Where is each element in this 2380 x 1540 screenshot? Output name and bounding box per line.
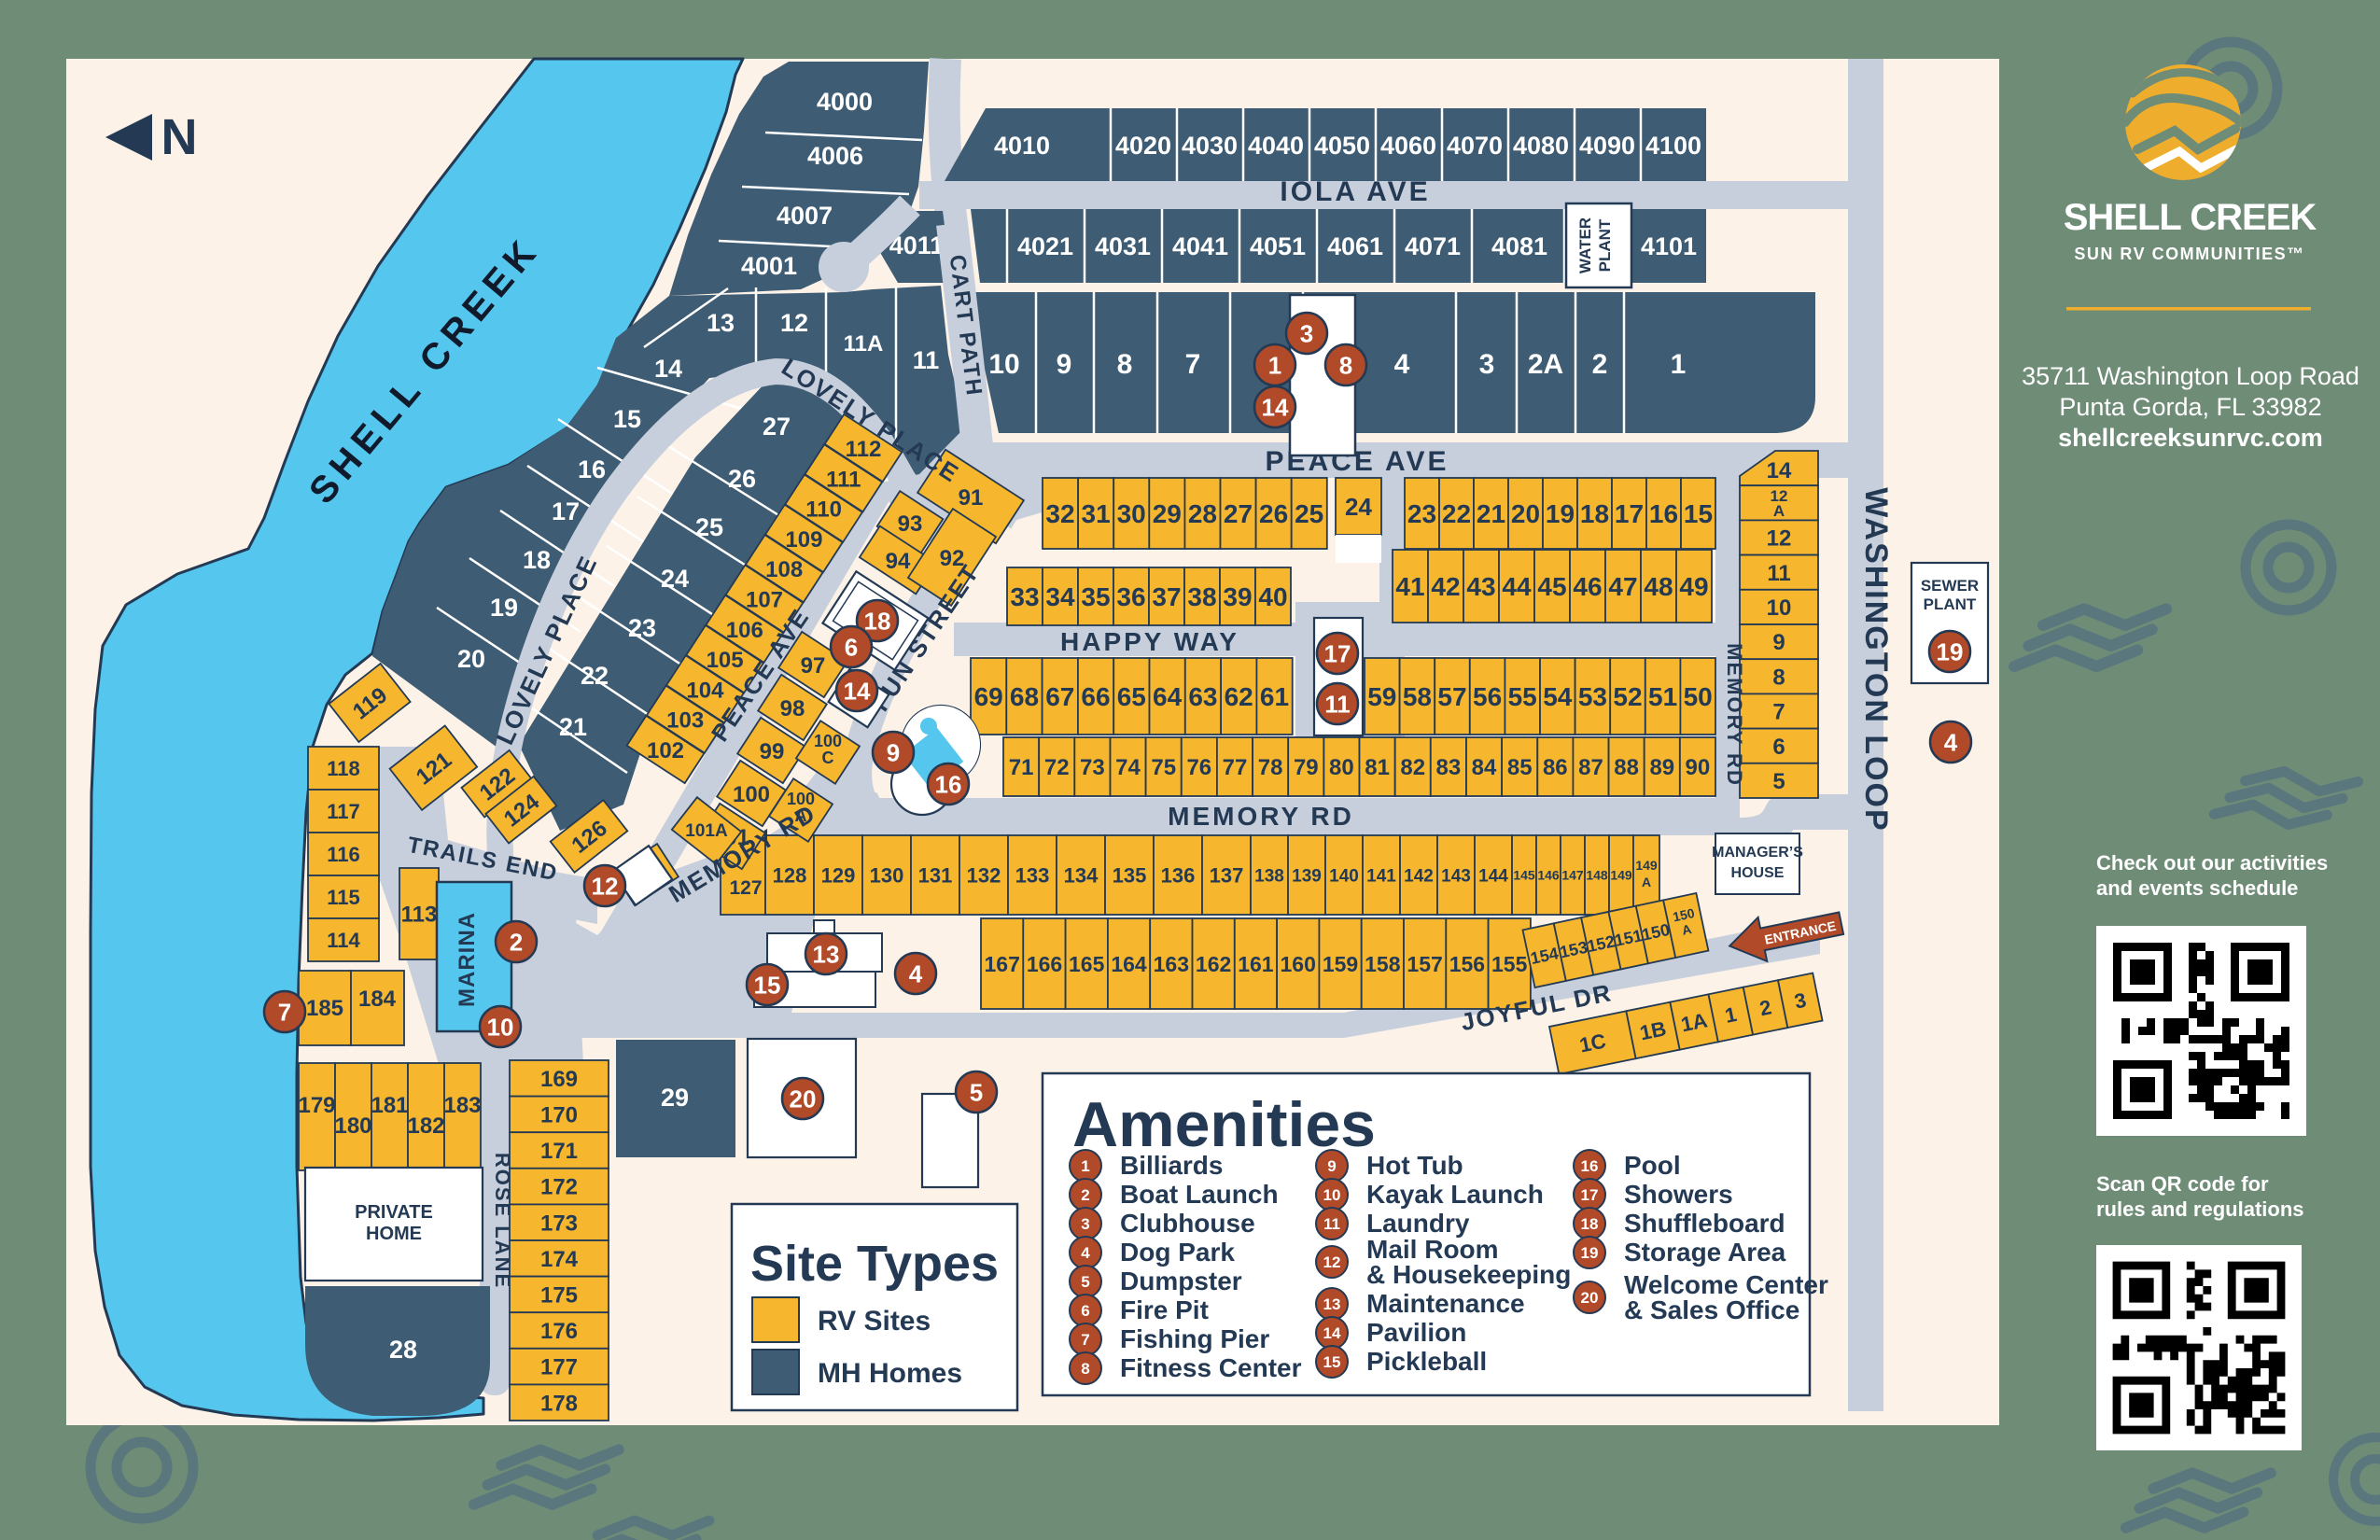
svg-text:116: 116 xyxy=(327,843,360,866)
svg-text:8: 8 xyxy=(1117,349,1133,380)
svg-text:46: 46 xyxy=(1573,572,1602,601)
svg-text:35711 Washington Loop Road: 35711 Washington Loop Road xyxy=(2022,362,2359,390)
svg-text:13: 13 xyxy=(1323,1295,1341,1313)
svg-text:RV Sites: RV Sites xyxy=(818,1306,931,1337)
svg-text:rules and regulations: rules and regulations xyxy=(2096,1197,2304,1221)
svg-text:Clubhouse: Clubhouse xyxy=(1120,1209,1255,1238)
svg-text:2: 2 xyxy=(510,928,523,956)
svg-text:61: 61 xyxy=(1260,682,1289,711)
svg-text:28: 28 xyxy=(389,1336,417,1364)
svg-text:9: 9 xyxy=(1057,349,1072,380)
svg-text:4007: 4007 xyxy=(777,202,833,230)
svg-text:143: 143 xyxy=(1441,866,1471,886)
svg-text:138: 138 xyxy=(1254,866,1284,886)
svg-text:4071: 4071 xyxy=(1405,232,1461,260)
svg-text:139: 139 xyxy=(1292,866,1322,886)
svg-text:79: 79 xyxy=(1294,755,1319,780)
svg-text:100: 100 xyxy=(814,732,842,750)
svg-text:99: 99 xyxy=(760,739,785,764)
svg-text:98: 98 xyxy=(780,696,805,721)
svg-text:12: 12 xyxy=(780,309,808,337)
svg-text:Site Types: Site Types xyxy=(750,1236,999,1292)
svg-text:110: 110 xyxy=(805,497,842,523)
svg-text:29: 29 xyxy=(1153,499,1182,528)
svg-text:165: 165 xyxy=(1069,952,1105,976)
svg-text:6: 6 xyxy=(1081,1302,1089,1320)
svg-text:100: 100 xyxy=(733,782,770,807)
svg-text:Check out our activities: Check out our activities xyxy=(2096,851,2328,875)
svg-text:17: 17 xyxy=(1324,639,1351,667)
svg-text:3: 3 xyxy=(1479,349,1495,380)
svg-text:65: 65 xyxy=(1117,682,1146,711)
svg-text:17: 17 xyxy=(552,497,580,525)
svg-text:49: 49 xyxy=(1679,572,1708,601)
svg-text:25: 25 xyxy=(1295,499,1323,528)
svg-text:13: 13 xyxy=(707,309,735,337)
svg-text:133: 133 xyxy=(1015,863,1050,887)
svg-text:81: 81 xyxy=(1365,755,1390,780)
svg-text:55: 55 xyxy=(1508,682,1537,711)
svg-text:181: 181 xyxy=(371,1093,408,1118)
svg-text:42: 42 xyxy=(1431,572,1460,601)
svg-text:C: C xyxy=(822,749,834,767)
svg-text:4081: 4081 xyxy=(1491,232,1547,260)
svg-text:93: 93 xyxy=(898,511,923,537)
svg-text:Punta Gorda, FL 33982: Punta Gorda, FL 33982 xyxy=(2059,393,2321,421)
svg-text:11: 11 xyxy=(913,346,940,374)
svg-text:15: 15 xyxy=(754,971,781,999)
svg-text:1: 1 xyxy=(1081,1157,1089,1175)
svg-text:180: 180 xyxy=(334,1113,371,1139)
svg-text:142: 142 xyxy=(1404,866,1434,886)
svg-text:WATER: WATER xyxy=(1576,217,1594,273)
svg-text:Hot Tub: Hot Tub xyxy=(1366,1151,1463,1180)
svg-text:157: 157 xyxy=(1407,952,1442,976)
svg-text:27: 27 xyxy=(1224,499,1253,528)
svg-text:141: 141 xyxy=(1366,866,1396,886)
svg-text:158: 158 xyxy=(1365,952,1401,976)
svg-text:12: 12 xyxy=(592,872,619,900)
svg-text:11: 11 xyxy=(1323,1215,1340,1233)
svg-text:20: 20 xyxy=(790,1085,817,1113)
svg-text:145: 145 xyxy=(1513,868,1535,883)
svg-text:19: 19 xyxy=(1581,1244,1599,1262)
svg-text:90: 90 xyxy=(1686,755,1711,780)
svg-text:23: 23 xyxy=(628,614,656,642)
svg-text:97: 97 xyxy=(801,653,826,679)
svg-text:4: 4 xyxy=(1394,349,1410,380)
svg-text:14: 14 xyxy=(1323,1324,1341,1342)
svg-text:1: 1 xyxy=(1268,351,1281,379)
svg-text:107: 107 xyxy=(746,588,783,613)
svg-text:19: 19 xyxy=(1937,637,1964,665)
svg-text:149: 149 xyxy=(1610,868,1632,883)
svg-text:38: 38 xyxy=(1187,582,1216,611)
svg-text:36: 36 xyxy=(1116,582,1145,611)
svg-text:7: 7 xyxy=(1081,1331,1089,1349)
svg-text:28: 28 xyxy=(1188,499,1217,528)
svg-text:52: 52 xyxy=(1613,682,1642,711)
svg-text:135: 135 xyxy=(1113,863,1147,887)
svg-text:41: 41 xyxy=(1395,572,1424,601)
svg-text:159: 159 xyxy=(1323,952,1358,976)
svg-text:147: 147 xyxy=(1561,868,1584,883)
svg-text:4101: 4101 xyxy=(1641,232,1697,260)
svg-text:86: 86 xyxy=(1543,755,1568,780)
svg-text:HAPPY WAY: HAPPY WAY xyxy=(1060,627,1239,656)
svg-text:109: 109 xyxy=(785,527,822,553)
svg-text:Pool: Pool xyxy=(1624,1151,1681,1180)
svg-text:163: 163 xyxy=(1154,952,1189,976)
svg-text:32: 32 xyxy=(1045,499,1074,528)
svg-text:35: 35 xyxy=(1081,582,1110,611)
svg-text:77: 77 xyxy=(1223,755,1248,780)
svg-text:75: 75 xyxy=(1151,755,1176,780)
svg-text:82: 82 xyxy=(1400,755,1425,780)
svg-text:4010: 4010 xyxy=(994,132,1050,160)
svg-text:108: 108 xyxy=(765,557,803,582)
svg-text:173: 173 xyxy=(540,1211,578,1236)
svg-text:Showers: Showers xyxy=(1624,1180,1733,1209)
svg-text:148: 148 xyxy=(1586,868,1608,883)
svg-text:130: 130 xyxy=(870,863,904,887)
svg-text:4001: 4001 xyxy=(741,252,797,280)
svg-text:73: 73 xyxy=(1080,755,1105,780)
svg-text:102: 102 xyxy=(647,738,684,763)
svg-text:69: 69 xyxy=(974,682,1003,711)
svg-text:20: 20 xyxy=(1511,499,1540,528)
svg-text:7: 7 xyxy=(1772,700,1785,725)
svg-text:A: A xyxy=(1642,875,1651,889)
svg-text:9: 9 xyxy=(1327,1157,1336,1175)
svg-text:161: 161 xyxy=(1238,952,1274,976)
svg-text:34: 34 xyxy=(1045,582,1075,611)
svg-text:72: 72 xyxy=(1044,755,1070,780)
svg-text:54: 54 xyxy=(1543,682,1573,711)
svg-text:29: 29 xyxy=(661,1084,689,1112)
svg-text:58: 58 xyxy=(1403,682,1432,711)
svg-text:25: 25 xyxy=(695,513,723,541)
svg-text:53: 53 xyxy=(1578,682,1607,711)
svg-text:& Housekeeping: & Housekeeping xyxy=(1366,1260,1571,1289)
svg-text:127: 127 xyxy=(729,877,762,899)
svg-text:167: 167 xyxy=(985,952,1020,976)
svg-text:6: 6 xyxy=(1772,735,1785,760)
svg-text:111: 111 xyxy=(826,467,861,492)
svg-text:Dog Park: Dog Park xyxy=(1120,1238,1235,1267)
svg-text:40: 40 xyxy=(1258,582,1287,611)
svg-text:4031: 4031 xyxy=(1095,232,1151,260)
svg-text:179: 179 xyxy=(298,1093,335,1118)
svg-text:14: 14 xyxy=(1767,458,1792,483)
svg-text:89: 89 xyxy=(1649,755,1674,780)
svg-text:14: 14 xyxy=(1262,393,1289,421)
svg-text:MEMORY RD: MEMORY RD xyxy=(1723,643,1746,787)
svg-text:88: 88 xyxy=(1614,755,1639,780)
svg-text:5: 5 xyxy=(1081,1273,1089,1291)
svg-text:185: 185 xyxy=(306,996,343,1021)
svg-text:4041: 4041 xyxy=(1172,232,1228,260)
svg-text:74: 74 xyxy=(1115,755,1141,780)
svg-text:114: 114 xyxy=(327,929,360,952)
svg-text:170: 170 xyxy=(540,1103,578,1128)
svg-text:18: 18 xyxy=(1581,1215,1599,1233)
svg-text:37: 37 xyxy=(1152,582,1181,611)
svg-text:Boat Launch: Boat Launch xyxy=(1120,1180,1279,1209)
svg-text:84: 84 xyxy=(1472,755,1497,780)
svg-text:8: 8 xyxy=(1081,1360,1089,1378)
svg-text:156: 156 xyxy=(1449,952,1485,976)
svg-text:4070: 4070 xyxy=(1447,132,1503,160)
svg-text:57: 57 xyxy=(1437,682,1466,711)
svg-text:33: 33 xyxy=(1010,582,1039,611)
svg-text:12: 12 xyxy=(1323,1253,1341,1271)
svg-text:15: 15 xyxy=(1323,1353,1341,1371)
svg-text:24: 24 xyxy=(1345,493,1372,521)
svg-text:4080: 4080 xyxy=(1513,132,1569,160)
svg-text:183: 183 xyxy=(443,1093,481,1118)
svg-text:149: 149 xyxy=(1635,858,1658,873)
svg-text:9: 9 xyxy=(887,738,900,766)
svg-text:4061: 4061 xyxy=(1327,232,1383,260)
svg-text:N: N xyxy=(161,109,198,165)
svg-text:Fitness Center: Fitness Center xyxy=(1120,1353,1302,1382)
svg-text:128: 128 xyxy=(773,863,807,887)
svg-text:16: 16 xyxy=(578,455,606,483)
svg-text:177: 177 xyxy=(540,1355,578,1380)
svg-text:SUN RV COMMUNITIES™: SUN RV COMMUNITIES™ xyxy=(2074,245,2304,263)
svg-text:4100: 4100 xyxy=(1645,132,1701,160)
svg-text:71: 71 xyxy=(1009,755,1034,780)
svg-text:18: 18 xyxy=(1580,499,1609,528)
svg-text:140: 140 xyxy=(1329,866,1359,886)
svg-text:2A: 2A xyxy=(1528,349,1563,380)
svg-text:4030: 4030 xyxy=(1182,132,1238,160)
svg-text:22: 22 xyxy=(1442,499,1471,528)
svg-text:18: 18 xyxy=(864,607,891,635)
svg-text:PLANT: PLANT xyxy=(1596,218,1614,272)
svg-text:104: 104 xyxy=(686,678,724,703)
svg-text:9: 9 xyxy=(1772,630,1785,655)
svg-text:21: 21 xyxy=(559,713,587,741)
svg-text:105: 105 xyxy=(707,648,744,673)
svg-text:HOME: HOME xyxy=(366,1224,422,1244)
svg-text:59: 59 xyxy=(1367,682,1396,711)
svg-text:117: 117 xyxy=(327,800,360,823)
svg-text:67: 67 xyxy=(1045,682,1074,711)
svg-text:62: 62 xyxy=(1225,682,1253,711)
svg-text:101A: 101A xyxy=(685,821,728,841)
svg-text:56: 56 xyxy=(1473,682,1502,711)
svg-text:66: 66 xyxy=(1081,682,1110,711)
svg-text:178: 178 xyxy=(540,1391,578,1416)
svg-text:4021: 4021 xyxy=(1017,232,1073,260)
svg-text:16: 16 xyxy=(1581,1157,1599,1175)
svg-text:Shuffleboard: Shuffleboard xyxy=(1624,1209,1785,1238)
svg-text:16: 16 xyxy=(1649,499,1678,528)
svg-text:10: 10 xyxy=(988,349,1019,380)
svg-text:11: 11 xyxy=(1767,561,1790,586)
svg-text:15: 15 xyxy=(613,405,641,433)
svg-text:10: 10 xyxy=(1323,1186,1341,1204)
svg-text:166: 166 xyxy=(1027,952,1062,976)
svg-text:80: 80 xyxy=(1329,755,1354,780)
svg-text:131: 131 xyxy=(918,863,953,887)
svg-text:48: 48 xyxy=(1644,572,1673,601)
svg-text:24: 24 xyxy=(661,565,689,593)
svg-text:23: 23 xyxy=(1407,499,1436,528)
svg-text:113: 113 xyxy=(401,903,438,928)
svg-text:44: 44 xyxy=(1502,572,1532,601)
svg-text:4020: 4020 xyxy=(1115,132,1171,160)
svg-text:26: 26 xyxy=(728,465,756,493)
svg-text:3: 3 xyxy=(1081,1215,1089,1233)
svg-text:& Sales Office: & Sales Office xyxy=(1624,1295,1799,1324)
svg-text:103: 103 xyxy=(666,708,704,734)
svg-text:ROSE LANE: ROSE LANE xyxy=(491,1153,514,1289)
svg-text:8: 8 xyxy=(1339,351,1352,379)
svg-text:5: 5 xyxy=(1772,769,1785,794)
svg-text:94: 94 xyxy=(886,549,911,574)
svg-text:20: 20 xyxy=(457,645,485,673)
svg-text:19: 19 xyxy=(490,594,518,622)
svg-text:171: 171 xyxy=(540,1139,578,1164)
svg-text:155: 155 xyxy=(1491,952,1528,976)
svg-text:13: 13 xyxy=(813,940,840,968)
svg-text:19: 19 xyxy=(1546,499,1575,528)
svg-text:WASHINGTON LOOP: WASHINGTON LOOP xyxy=(1858,487,1894,832)
svg-text:64: 64 xyxy=(1153,682,1183,711)
svg-text:3: 3 xyxy=(1300,319,1313,347)
svg-text:26: 26 xyxy=(1259,499,1288,528)
svg-text:PLANT: PLANT xyxy=(1924,595,1977,613)
svg-text:136: 136 xyxy=(1161,863,1196,887)
svg-text:43: 43 xyxy=(1466,572,1495,601)
svg-text:MEMORY RD: MEMORY RD xyxy=(1168,802,1354,831)
svg-text:1: 1 xyxy=(1671,349,1687,380)
svg-text:2: 2 xyxy=(1592,349,1608,380)
svg-text:16: 16 xyxy=(935,770,962,798)
svg-text:Fishing Pier: Fishing Pier xyxy=(1120,1324,1269,1353)
svg-text:shellcreeksunrvc.com: shellcreeksunrvc.com xyxy=(2058,424,2323,452)
svg-text:Billiards: Billiards xyxy=(1120,1151,1223,1180)
svg-text:76: 76 xyxy=(1186,755,1211,780)
svg-text:10: 10 xyxy=(1767,595,1792,621)
svg-text:63: 63 xyxy=(1188,682,1217,711)
svg-text:50: 50 xyxy=(1684,682,1713,711)
svg-text:176: 176 xyxy=(540,1319,578,1344)
svg-text:118: 118 xyxy=(327,757,360,780)
svg-text:SHELL CREEK: SHELL CREEK xyxy=(2064,197,2317,238)
svg-text:106: 106 xyxy=(726,618,763,643)
svg-text:144: 144 xyxy=(1478,866,1508,886)
svg-text:182: 182 xyxy=(407,1113,444,1139)
svg-text:7: 7 xyxy=(278,998,291,1026)
svg-text:27: 27 xyxy=(763,413,791,441)
svg-text:12: 12 xyxy=(1767,526,1792,552)
svg-text:Fire Pit: Fire Pit xyxy=(1120,1295,1209,1324)
svg-text:31: 31 xyxy=(1082,499,1111,528)
svg-text:45: 45 xyxy=(1537,572,1566,601)
svg-text:17: 17 xyxy=(1581,1186,1599,1204)
svg-text:Pavilion: Pavilion xyxy=(1366,1318,1466,1347)
svg-text:5: 5 xyxy=(970,1078,983,1106)
svg-text:11: 11 xyxy=(1324,690,1351,718)
svg-text:39: 39 xyxy=(1223,582,1252,611)
svg-text:85: 85 xyxy=(1507,755,1533,780)
svg-text:51: 51 xyxy=(1648,682,1677,711)
svg-text:14: 14 xyxy=(654,355,682,383)
svg-text:15: 15 xyxy=(1684,499,1713,528)
svg-text:91: 91 xyxy=(959,485,984,511)
svg-text:8: 8 xyxy=(1772,665,1785,690)
svg-text:SEWER: SEWER xyxy=(1921,577,1979,595)
svg-text:4090: 4090 xyxy=(1579,132,1635,160)
svg-text:and events schedule: and events schedule xyxy=(2096,876,2298,900)
svg-text:4: 4 xyxy=(1081,1244,1090,1262)
svg-text:PRIVATE: PRIVATE xyxy=(355,1202,433,1223)
svg-text:4040: 4040 xyxy=(1248,132,1304,160)
svg-text:4050: 4050 xyxy=(1314,132,1370,160)
svg-text:14: 14 xyxy=(844,677,871,705)
svg-text:2: 2 xyxy=(1081,1186,1089,1204)
svg-text:132: 132 xyxy=(967,863,1001,887)
svg-text:7: 7 xyxy=(1185,349,1201,380)
svg-text:4060: 4060 xyxy=(1380,132,1436,160)
svg-text:Laundry: Laundry xyxy=(1366,1209,1470,1238)
svg-text:30: 30 xyxy=(1117,499,1146,528)
svg-text:18: 18 xyxy=(523,546,551,574)
svg-text:129: 129 xyxy=(821,863,856,887)
svg-text:137: 137 xyxy=(1210,863,1244,887)
svg-text:Scan QR code for: Scan QR code for xyxy=(2096,1172,2269,1196)
svg-text:11A: 11A xyxy=(844,331,884,357)
svg-text:4: 4 xyxy=(909,959,923,987)
svg-text:MANAGER’S: MANAGER’S xyxy=(1712,845,1803,861)
svg-text:Dumpster: Dumpster xyxy=(1120,1267,1242,1295)
svg-text:6: 6 xyxy=(845,633,858,661)
svg-text:22: 22 xyxy=(581,662,609,690)
svg-text:Kayak Launch: Kayak Launch xyxy=(1366,1180,1544,1209)
svg-text:10: 10 xyxy=(487,1013,514,1041)
svg-text:83: 83 xyxy=(1436,755,1462,780)
svg-text:160: 160 xyxy=(1281,952,1316,976)
svg-text:162: 162 xyxy=(1196,952,1231,976)
svg-text:17: 17 xyxy=(1615,499,1644,528)
svg-text:MH Homes: MH Homes xyxy=(818,1358,962,1389)
svg-text:174: 174 xyxy=(540,1247,579,1272)
svg-text:78: 78 xyxy=(1258,755,1283,780)
svg-text:87: 87 xyxy=(1578,755,1603,780)
svg-text:4051: 4051 xyxy=(1250,232,1306,260)
svg-text:68: 68 xyxy=(1010,682,1039,711)
svg-text:169: 169 xyxy=(540,1067,578,1092)
svg-text:112: 112 xyxy=(846,437,882,462)
svg-text:47: 47 xyxy=(1608,572,1637,601)
svg-text:IOLA AVE: IOLA AVE xyxy=(1280,176,1430,207)
svg-text:4000: 4000 xyxy=(817,88,873,116)
svg-text:115: 115 xyxy=(327,886,360,909)
svg-text:A: A xyxy=(1773,502,1785,520)
svg-text:184: 184 xyxy=(358,987,397,1012)
svg-text:146: 146 xyxy=(1537,868,1560,883)
svg-text:MARINA: MARINA xyxy=(455,912,480,1007)
svg-text:21: 21 xyxy=(1477,499,1505,528)
svg-text:4006: 4006 xyxy=(807,142,863,170)
svg-text:Pickleball: Pickleball xyxy=(1366,1347,1487,1376)
svg-text:134: 134 xyxy=(1064,863,1099,887)
svg-text:175: 175 xyxy=(540,1283,578,1309)
